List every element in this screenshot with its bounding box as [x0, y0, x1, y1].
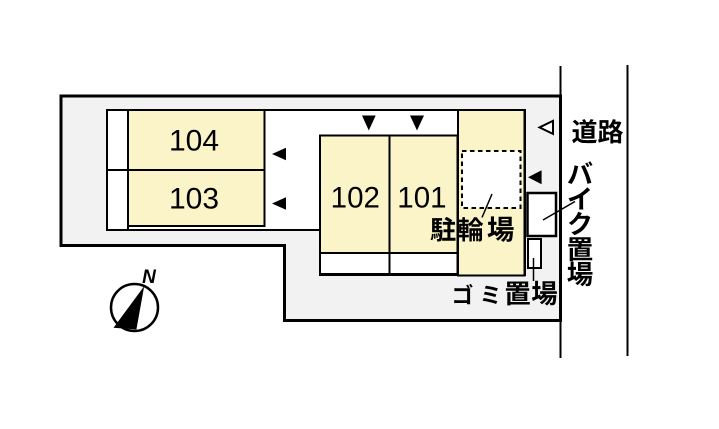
- svg-text:102: 102: [331, 182, 380, 215]
- svg-text:103: 103: [169, 183, 219, 216]
- svg-text:N: N: [142, 267, 157, 288]
- svg-text:104: 104: [169, 125, 219, 158]
- svg-text:101: 101: [397, 182, 446, 215]
